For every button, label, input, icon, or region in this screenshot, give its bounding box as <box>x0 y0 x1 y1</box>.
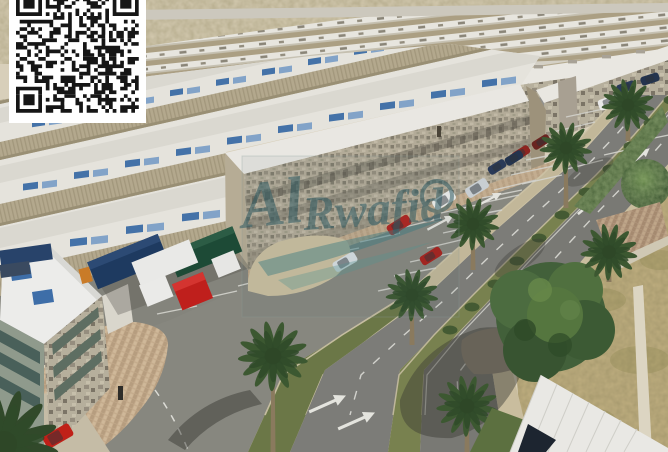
svg-text:Al: Al <box>233 164 307 244</box>
